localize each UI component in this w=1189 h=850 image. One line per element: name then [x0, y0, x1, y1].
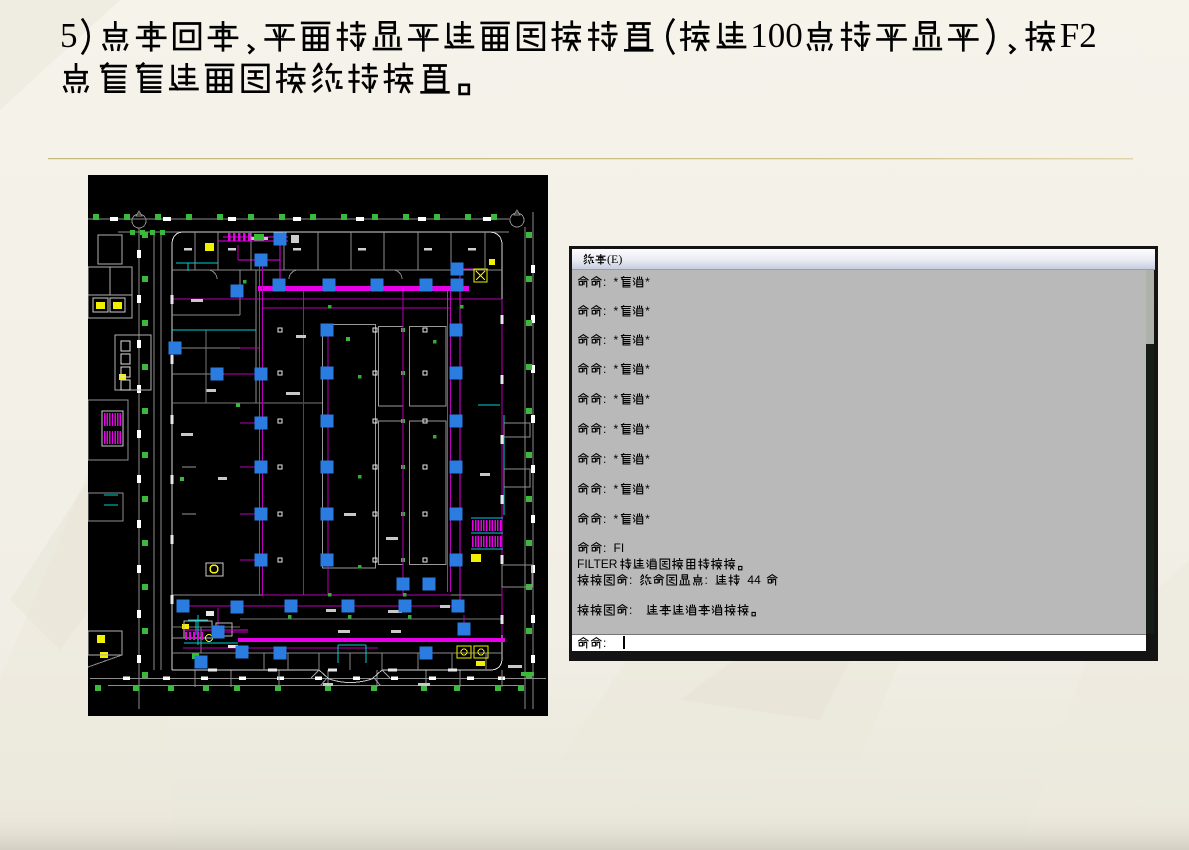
svg-text::: :	[629, 573, 632, 587]
svg-text::: :	[629, 603, 632, 617]
svg-text::: :	[705, 573, 708, 587]
svg-text::: :	[603, 452, 606, 466]
svg-text::: :	[603, 275, 606, 289]
svg-text:*: *	[614, 452, 619, 466]
svg-text:*: *	[645, 422, 650, 436]
svg-text:*: *	[614, 333, 619, 347]
svg-text:*: *	[614, 275, 619, 289]
svg-text:*: *	[645, 362, 650, 376]
svg-text:*: *	[645, 275, 650, 289]
svg-text:*: *	[614, 362, 619, 376]
svg-text:44: 44	[747, 573, 761, 587]
svg-text::: :	[603, 541, 606, 555]
svg-text:FILTER: FILTER	[577, 557, 618, 571]
svg-text:*: *	[645, 452, 650, 466]
svg-text::: :	[603, 482, 606, 496]
svg-text:*: *	[614, 392, 619, 406]
svg-text:*: *	[645, 333, 650, 347]
svg-text::: :	[603, 422, 606, 436]
svg-text::: :	[603, 392, 606, 406]
svg-text:*: *	[645, 304, 650, 318]
svg-text:*: *	[645, 512, 650, 526]
svg-text:*: *	[645, 482, 650, 496]
svg-text:*: *	[614, 482, 619, 496]
svg-text:5: 5	[60, 16, 78, 55]
svg-text:*: *	[614, 304, 619, 318]
svg-text:*: *	[645, 392, 650, 406]
svg-text::: :	[603, 512, 606, 526]
svg-text:F2: F2	[1060, 16, 1097, 55]
svg-text::: :	[603, 304, 606, 318]
svg-text::: :	[603, 636, 606, 650]
svg-text:100: 100	[750, 16, 803, 55]
svg-text:*: *	[614, 422, 619, 436]
svg-text:(E): (E)	[607, 252, 622, 266]
svg-text::: :	[603, 362, 606, 376]
svg-text:FI: FI	[614, 541, 625, 555]
svg-text::: :	[603, 333, 606, 347]
svg-text:*: *	[614, 512, 619, 526]
